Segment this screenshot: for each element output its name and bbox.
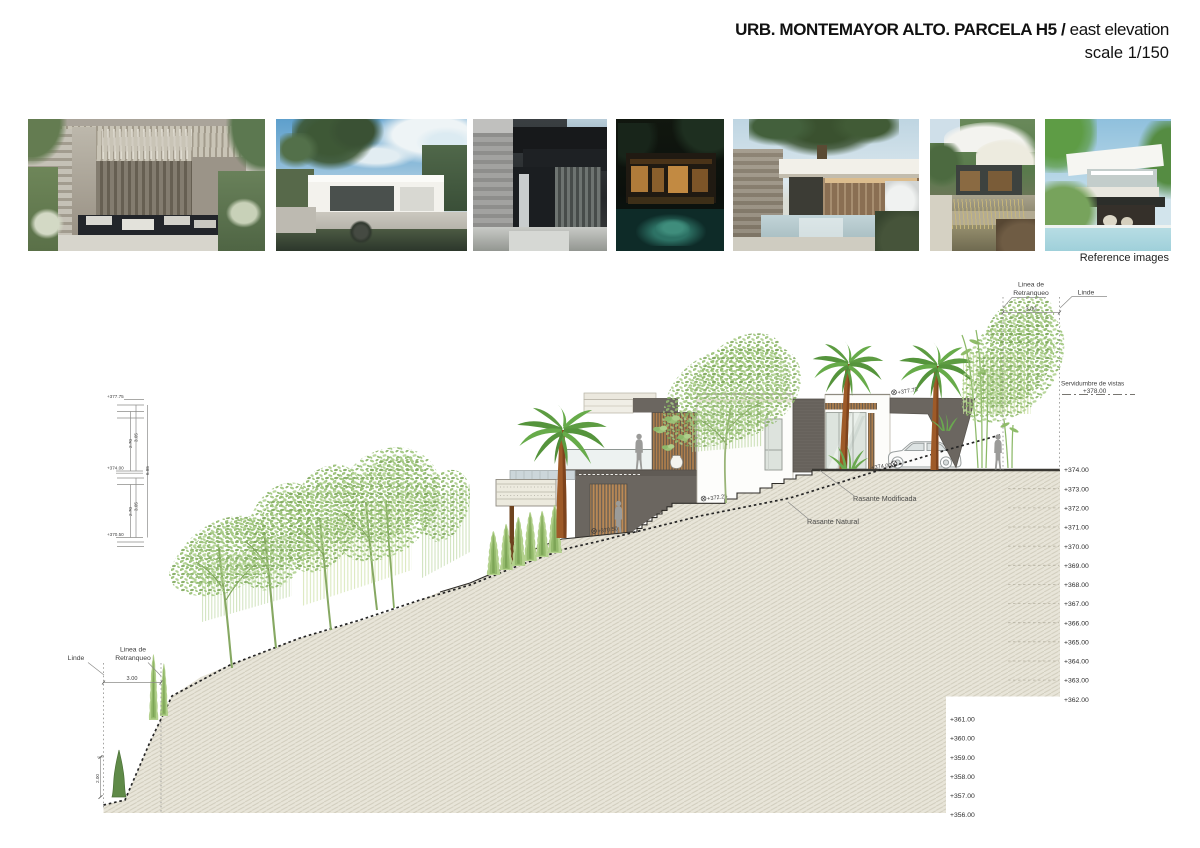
- svg-text:3.05: 3.05: [134, 502, 139, 511]
- svg-text:+377.75: +377.75: [107, 394, 124, 399]
- svg-text:+370.00: +370.00: [1064, 544, 1089, 551]
- svg-text:+378.00: +378.00: [1083, 388, 1107, 395]
- svg-text:+366.00: +366.00: [1064, 620, 1089, 627]
- svg-text:+364.00: +364.00: [1064, 659, 1089, 666]
- svg-text:3.05: 3.05: [134, 433, 139, 442]
- svg-text:+374.00: +374.00: [107, 466, 124, 471]
- svg-text:+368.00: +368.00: [1064, 582, 1089, 589]
- svg-text:+373.00: +373.00: [1064, 486, 1089, 493]
- svg-text:+358.00: +358.00: [950, 774, 975, 781]
- svg-text:2.70: 2.70: [128, 507, 133, 516]
- svg-text:+371.00: +371.00: [1064, 525, 1089, 532]
- svg-text:+365.00: +365.00: [1064, 639, 1089, 646]
- svg-text:+372.00: +372.00: [1064, 506, 1089, 513]
- svg-text:+367.00: +367.00: [1064, 601, 1089, 608]
- svg-text:+369.00: +369.00: [1064, 563, 1089, 570]
- svg-text:Retranqueo: Retranqueo: [1013, 290, 1049, 297]
- svg-text:+374.00: +374.00: [1064, 467, 1089, 474]
- svg-text:3.00: 3.00: [127, 676, 138, 682]
- svg-text:Linde: Linde: [1078, 290, 1095, 297]
- svg-text:Linea de: Linea de: [120, 647, 146, 654]
- svg-text:+363.00: +363.00: [1064, 678, 1089, 685]
- svg-text:Rasante Modificada: Rasante Modificada: [853, 494, 917, 503]
- svg-text:6.85: 6.85: [145, 466, 150, 475]
- svg-text:Linde: Linde: [68, 655, 85, 662]
- svg-text:+370.50: +370.50: [107, 532, 124, 537]
- svg-text:Servidumbre de vistas: Servidumbre de vistas: [1061, 381, 1124, 388]
- svg-text:+361.00: +361.00: [950, 717, 975, 724]
- svg-text:+359.00: +359.00: [950, 755, 975, 762]
- svg-text:Linea de: Linea de: [1018, 282, 1044, 289]
- svg-text:Rasante Natural: Rasante Natural: [807, 517, 859, 526]
- svg-text:2.00: 2.00: [95, 774, 100, 783]
- svg-text:+360.00: +360.00: [950, 736, 975, 743]
- svg-text:+357.00: +357.00: [950, 793, 975, 800]
- svg-text:+356.00: +356.00: [950, 812, 975, 819]
- svg-text:+362.00: +362.00: [1064, 697, 1089, 704]
- svg-text:Retranqueo: Retranqueo: [115, 655, 151, 662]
- svg-text:3.00: 3.00: [1026, 307, 1037, 313]
- svg-text:2.70: 2.70: [128, 439, 133, 448]
